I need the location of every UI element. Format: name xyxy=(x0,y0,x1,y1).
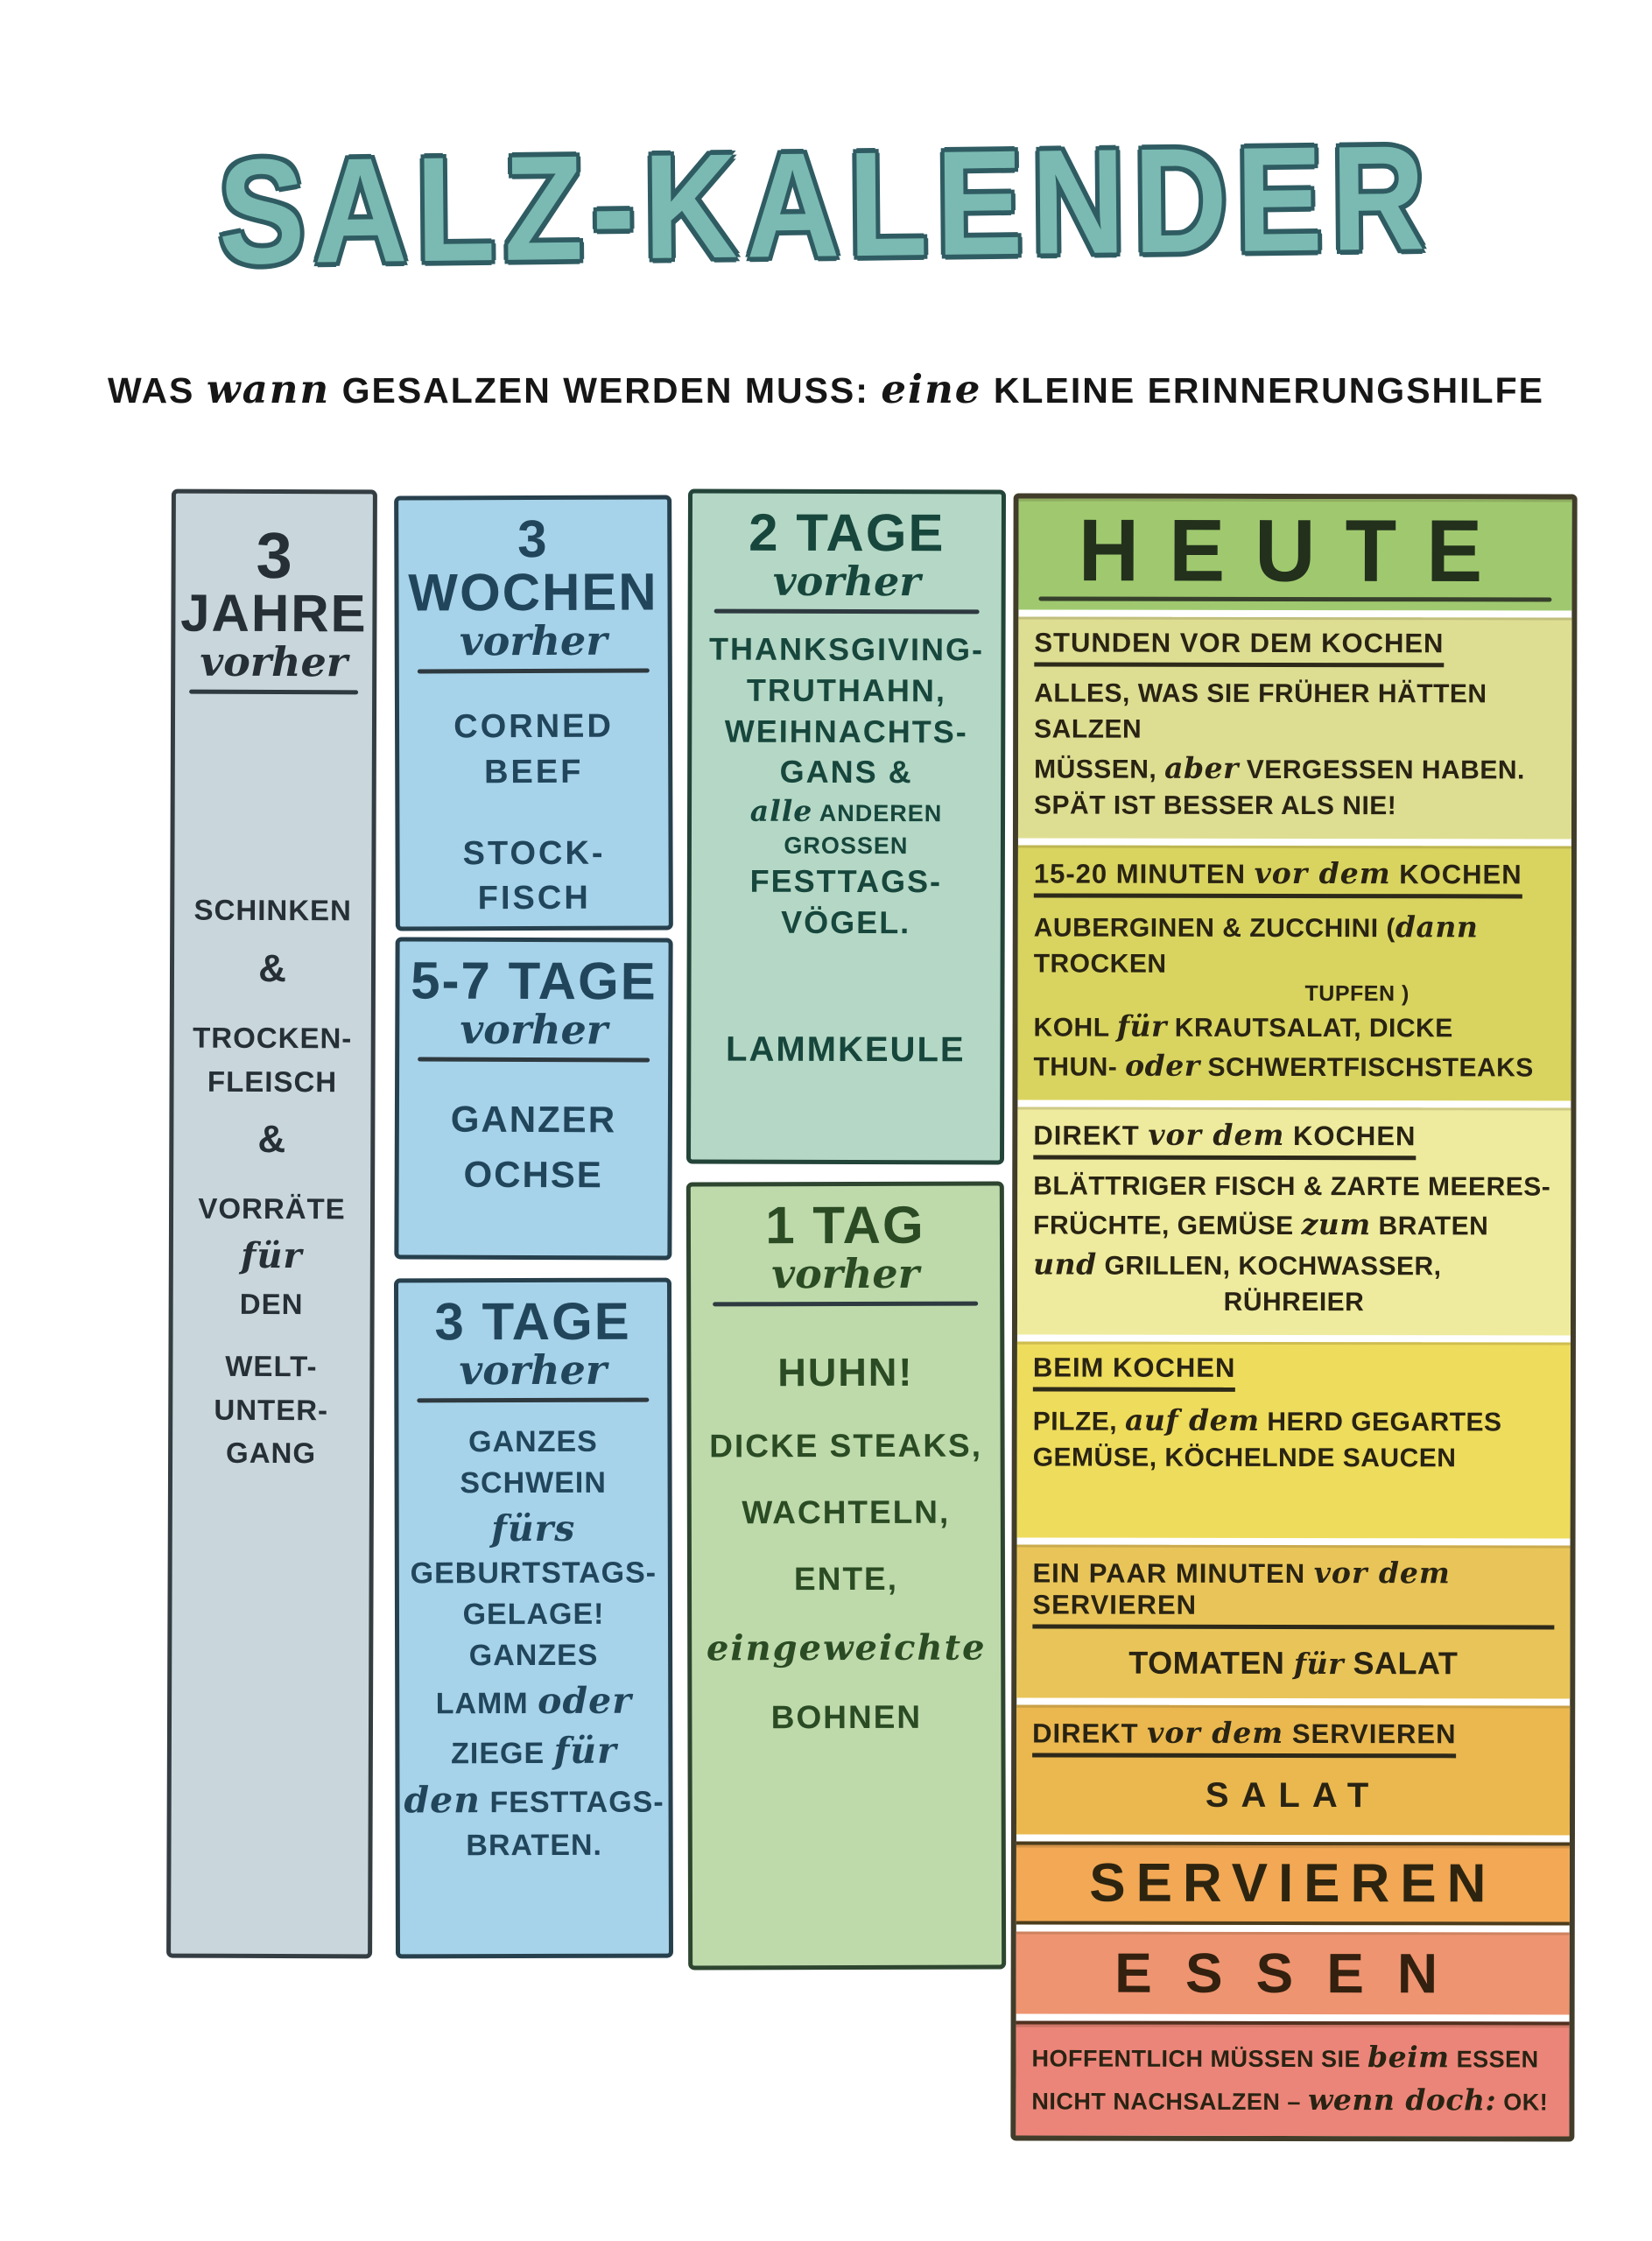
subtitle-script-word: eine xyxy=(881,366,981,412)
body-text: TROCKEN xyxy=(1034,950,1167,979)
underline-rule xyxy=(418,1398,649,1403)
item-mixed-line: LAMM oder xyxy=(399,1676,668,1726)
section-body-line: AUBERGINEN & ZUCCHINI (dann TROCKEN xyxy=(1034,906,1556,983)
header-text: 2 TAGE xyxy=(692,506,1002,560)
heute-title: HEUTE xyxy=(1030,505,1559,598)
ampersand: & xyxy=(174,944,371,995)
column-items: SCHINKEN & TROCKEN- FLEISCH & VORRÄTE fü… xyxy=(172,891,371,1472)
script-word: oder xyxy=(538,1680,632,1722)
box-items: THANKSGIVING- TRUTHAHN, WEIHNACHTS- GANS… xyxy=(691,629,1001,1073)
section-body-line: ALLES, WAS SIE FRÜHER HÄTTEN SALZEN xyxy=(1034,675,1556,748)
item-text: DEN xyxy=(173,1284,370,1323)
box-header: 3 TAGE vorher xyxy=(398,1282,667,1403)
script-word: vor dem xyxy=(1255,855,1391,889)
heading-text: DIREKT xyxy=(1033,1120,1139,1150)
script-word: beim xyxy=(1367,2040,1450,2074)
box-3-wochen-vorher: 3 WOCHEN vorher CORNED BEEF STOCK- FISCH xyxy=(394,495,673,931)
body-text: VERGESSEN HABEN. xyxy=(1247,755,1525,785)
column-header: 3 JAHRE vorher xyxy=(175,494,373,695)
section-body-line: RÜHREIER xyxy=(1033,1284,1555,1321)
header-vorher-script: vorher xyxy=(399,621,668,663)
section-body-line: SALAT xyxy=(1032,1772,1554,1821)
page-title: SALZ-KALENDER xyxy=(0,110,1652,301)
item-text: TROCKEN- xyxy=(174,1019,371,1057)
item-text: VÖGEL. xyxy=(692,903,1001,945)
header-text: 3 TAGE xyxy=(398,1295,667,1349)
section-direkt-vor-dem-kochen: DIREKT vor dem KOCHEN BLÄTTRIGER FISCH &… xyxy=(1017,1106,1571,1335)
body-text: TOMATEN xyxy=(1128,1644,1284,1680)
section-heading: EIN PAAR MINUTEN vor dem SERVIEREN xyxy=(1032,1555,1554,1629)
body-text: SALAT xyxy=(1353,1645,1458,1681)
ampersand: & xyxy=(173,1114,370,1166)
body-text: NICHT NACHSALZEN – xyxy=(1031,2089,1301,2116)
heading-text: EIN PAAR MINUTEN xyxy=(1032,1557,1305,1589)
section-heading: BEIM KOCHEN xyxy=(1033,1352,1236,1391)
box-header: 5-7 TAGE vorher xyxy=(399,941,668,1062)
item-text: FESTTAGS- xyxy=(692,861,1001,903)
header-vorher-script: vorher xyxy=(398,1350,667,1392)
section-heading: DIREKT vor dem SERVIEREN xyxy=(1032,1716,1456,1759)
item-text: ENTE, xyxy=(692,1546,1001,1613)
section-direkt-vor-dem-servieren: DIREKT vor dem SERVIEREN SALAT xyxy=(1016,1705,1570,1835)
header-text: 1 TAG xyxy=(691,1198,1000,1253)
subtitle: WAS wann GESALZEN WERDEN MUSS: eine KLEI… xyxy=(0,366,1652,412)
section-body-line: SPÄT IST BESSER ALS NIE! xyxy=(1034,788,1556,825)
section-body-line: TUPFEN ) xyxy=(1305,982,1556,1007)
body-text: AUBERGINEN & ZUCCHINI ( xyxy=(1034,913,1395,943)
item-text: GEBURTSTAGS- xyxy=(399,1553,668,1595)
section-15-20-minuten-vor-dem-kochen: 15-20 MINUTEN vor dem KOCHEN AUBERGINEN … xyxy=(1017,845,1571,1101)
underline-rule xyxy=(189,690,359,695)
salt-calendar-illustration: SALZ-KALENDER WAS wann GESALZEN WERDEN M… xyxy=(0,0,1652,2241)
section-body-line: GEMÜSE, KÖCHELNDE SAUCEN xyxy=(1033,1440,1555,1477)
item-text: BRATEN. xyxy=(400,1825,669,1867)
item-text: GANZER xyxy=(399,1092,668,1148)
item-text: SCHWEIN xyxy=(399,1463,668,1505)
heading-text: 15-20 MINUTEN xyxy=(1034,858,1246,889)
item-text: DICKE STEAKS, xyxy=(692,1413,1001,1480)
script-word: für xyxy=(173,1233,370,1280)
column-heute: HEUTE STUNDEN VOR DEM KOCHEN ALLES, WAS … xyxy=(1010,493,1577,2141)
box-2-tage-vorher: 2 TAGE vorher THANKSGIVING- TRUTHAHN, WE… xyxy=(686,489,1006,1165)
item-text: BEEF xyxy=(399,749,668,795)
item-text: HUHN! xyxy=(691,1332,1000,1414)
box-header: 2 TAGE vorher xyxy=(692,494,1002,615)
item-text: FLEISCH xyxy=(173,1062,370,1100)
header-vorher-script: vorher xyxy=(399,1009,668,1051)
section-body-line: FRÜCHTE, GEMÜSE zum BRATEN xyxy=(1033,1205,1555,1246)
item-text: ZIEGE xyxy=(451,1737,545,1770)
script-word: alle xyxy=(750,794,813,828)
section-heading: STUNDEN VOR DEM KOCHEN xyxy=(1034,627,1444,667)
script-word: den xyxy=(404,1780,481,1822)
body-text: MÜSSEN, xyxy=(1034,755,1156,783)
column-3-jahre-vorher: 3 JAHRE vorher SCHINKEN & TROCKEN- FLEIS… xyxy=(166,489,377,1959)
item-text: THANKSGIVING- xyxy=(692,629,1001,671)
item-text: WEIHNACHTS- xyxy=(692,711,1001,753)
band-servieren: SERVIEREN xyxy=(1016,1841,1570,1925)
heading-text: KOCHEN xyxy=(1399,859,1522,889)
script-word: für xyxy=(554,1730,617,1772)
script-word: zum xyxy=(1302,1207,1371,1241)
body-text: BRATEN xyxy=(1379,1212,1489,1241)
subtitle-text: GESALZEN WERDEN MUSS: xyxy=(342,370,869,411)
header-unit: JAHRE xyxy=(175,587,372,641)
item-text: GANZES xyxy=(399,1635,668,1677)
footer-line: HOFFENTLICH MÜSSEN SIE beim ESSEN xyxy=(1031,2034,1553,2079)
body-text: SCHWERTFISCHSTEAKS xyxy=(1207,1053,1533,1083)
script-word: und xyxy=(1033,1247,1097,1281)
item-mixed-line: den FESTTAGS- xyxy=(399,1775,668,1825)
item-text: UNTER- xyxy=(172,1390,369,1429)
item-text: BOHNEN xyxy=(692,1683,1001,1751)
header-vorher-script: vorher xyxy=(692,561,1002,603)
script-word: fürs xyxy=(399,1504,668,1554)
script-word: für xyxy=(1294,1647,1344,1681)
script-word: auf dem xyxy=(1125,1403,1260,1437)
heading-text: KOCHEN xyxy=(1293,1120,1416,1151)
underline-rule xyxy=(418,1057,650,1063)
box-items: CORNED BEEF STOCK- FISCH xyxy=(399,705,669,922)
body-text: KOHL xyxy=(1034,1013,1110,1042)
essen-label: ESSEN xyxy=(1025,1940,1561,2006)
section-stunden-vor-dem-kochen: STUNDEN VOR DEM KOCHEN ALLES, WAS SIE FR… xyxy=(1018,616,1571,839)
item-mixed-line: ZIEGE für xyxy=(399,1725,668,1775)
heading-text: SERVIEREN xyxy=(1292,1718,1457,1749)
underline-rule xyxy=(713,1302,979,1307)
footer-note: HOFFENTLICH MÜSSEN SIE beim ESSEN NICHT … xyxy=(1016,2020,1569,2136)
subtitle-script-word: wann xyxy=(207,366,330,412)
box-1-tag-vorher: 1 TAG vorher HUHN! DICKE STEAKS, WACHTEL… xyxy=(686,1182,1006,1971)
item-text: WELT- xyxy=(172,1347,369,1386)
box-5-7-tage-vorher: 5-7 TAGE vorher GANZER OCHSE xyxy=(394,937,672,1260)
box-header: 3 WOCHEN vorher xyxy=(398,499,668,673)
box-header: 1 TAG vorher xyxy=(691,1186,1000,1307)
header-number: 3 xyxy=(176,506,373,587)
item-text: LAMM xyxy=(436,1687,529,1720)
heading-text: SERVIEREN xyxy=(1032,1589,1197,1619)
box-items: GANZER OCHSE xyxy=(399,1092,668,1203)
section-body-line: TOMATEN für SALAT xyxy=(1032,1640,1554,1685)
item-text: SCHINKEN xyxy=(174,891,371,930)
header-text: 5-7 TAGE xyxy=(399,953,668,1008)
item-text: WACHTELN, xyxy=(692,1479,1001,1547)
item-text: FISCH xyxy=(400,876,669,922)
body-text: ESSEN xyxy=(1457,2046,1539,2072)
box-items: GANZES SCHWEIN fürs GEBURTSTAGS- GELAGE!… xyxy=(398,1422,668,1867)
section-heading: 15-20 MINUTEN vor dem KOCHEN xyxy=(1034,855,1522,898)
item-text: GANG xyxy=(172,1434,369,1472)
script-word: vor dem xyxy=(1148,1118,1284,1152)
body-text: HOFFENTLICH MÜSSEN SIE xyxy=(1031,2045,1360,2072)
item-text: GELAGE! xyxy=(399,1594,668,1636)
script-word: aber xyxy=(1164,750,1239,784)
script-word: vor dem xyxy=(1147,1716,1283,1750)
item-text: TRUTHAHN, xyxy=(692,670,1001,712)
subtitle-text: WAS xyxy=(108,370,194,411)
heading-text: DIREKT xyxy=(1032,1718,1138,1749)
section-body-line: MÜSSEN, aber VERGESSEN HABEN. xyxy=(1034,748,1556,789)
section-body-line: KOHL für KRAUTSALAT, DICKE xyxy=(1034,1006,1556,1047)
item-text: GANS & xyxy=(692,752,1001,794)
item-text: CORNED xyxy=(399,705,668,750)
footer-line: NICHT NACHSALZEN – wenn doch: OK! xyxy=(1031,2078,1553,2123)
body-text: PILZE, xyxy=(1033,1407,1117,1436)
item-mixed-line: alle ANDEREN GROSSEN xyxy=(692,793,1001,862)
section-ein-paar-minuten-vor-dem-servieren: EIN PAAR MINUTEN vor dem SERVIEREN TOMAT… xyxy=(1016,1544,1570,1699)
script-word: für xyxy=(1117,1009,1167,1043)
section-beim-kochen: BEIM KOCHEN PILZE, auf dem HERD GEGARTES… xyxy=(1017,1341,1571,1538)
item-text: GANZES xyxy=(398,1422,667,1464)
script-word: dann xyxy=(1395,910,1479,944)
item-text: LAMMKEULE xyxy=(691,1026,1000,1072)
underline-rule xyxy=(418,669,649,674)
heute-header-band: HEUTE xyxy=(1018,498,1571,610)
script-word: wenn doch: xyxy=(1308,2083,1496,2117)
underline-rule xyxy=(714,609,980,615)
header-vorher-script: vorher xyxy=(175,642,372,684)
body-text: KRAUTSALAT, DICKE xyxy=(1175,1014,1453,1043)
body-text: FRÜCHTE, GEMÜSE xyxy=(1033,1212,1294,1241)
section-heading: DIREKT vor dem KOCHEN xyxy=(1033,1117,1416,1160)
header-text: 3 WOCHEN xyxy=(398,511,667,619)
body-text: THUN- xyxy=(1033,1053,1117,1082)
box-3-tage-vorher: 3 TAGE vorher GANZES SCHWEIN fürs GEBURT… xyxy=(394,1278,673,1959)
item-text: STOCK- xyxy=(399,831,668,876)
servieren-label: SERVIEREN xyxy=(1025,1851,1561,1914)
item-text: FESTTAGS- xyxy=(489,1786,664,1820)
script-word: oder xyxy=(1125,1049,1200,1083)
script-word: eingeweichte xyxy=(692,1612,1001,1684)
section-body-line: PILZE, auf dem HERD GEGARTES xyxy=(1033,1400,1555,1441)
header-vorher-script: vorher xyxy=(691,1254,1000,1296)
section-body-line: BLÄTTRIGER FISCH & ZARTE MEERES- xyxy=(1033,1168,1555,1205)
box-items: HUHN! DICKE STEAKS, WACHTELN, ENTE, eing… xyxy=(691,1332,1001,1752)
band-essen: ESSEN xyxy=(1016,1931,1570,2014)
item-text: OCHSE xyxy=(399,1147,668,1203)
item-text: VORRÄTE xyxy=(173,1190,370,1228)
body-text: HERD GEGARTES xyxy=(1267,1408,1501,1437)
body-text: GRILLEN, KOCHWASSER, xyxy=(1104,1252,1441,1282)
script-word: vor dem xyxy=(1314,1556,1451,1590)
section-body-line: THUN- oder SCHWERTFISCHSTEAKS xyxy=(1033,1046,1555,1087)
subtitle-text: KLEINE ERINNERUNGSHILFE xyxy=(994,370,1544,411)
body-text: OK! xyxy=(1503,2090,1548,2116)
section-body-line: und GRILLEN, KOCHWASSER, xyxy=(1033,1244,1555,1285)
